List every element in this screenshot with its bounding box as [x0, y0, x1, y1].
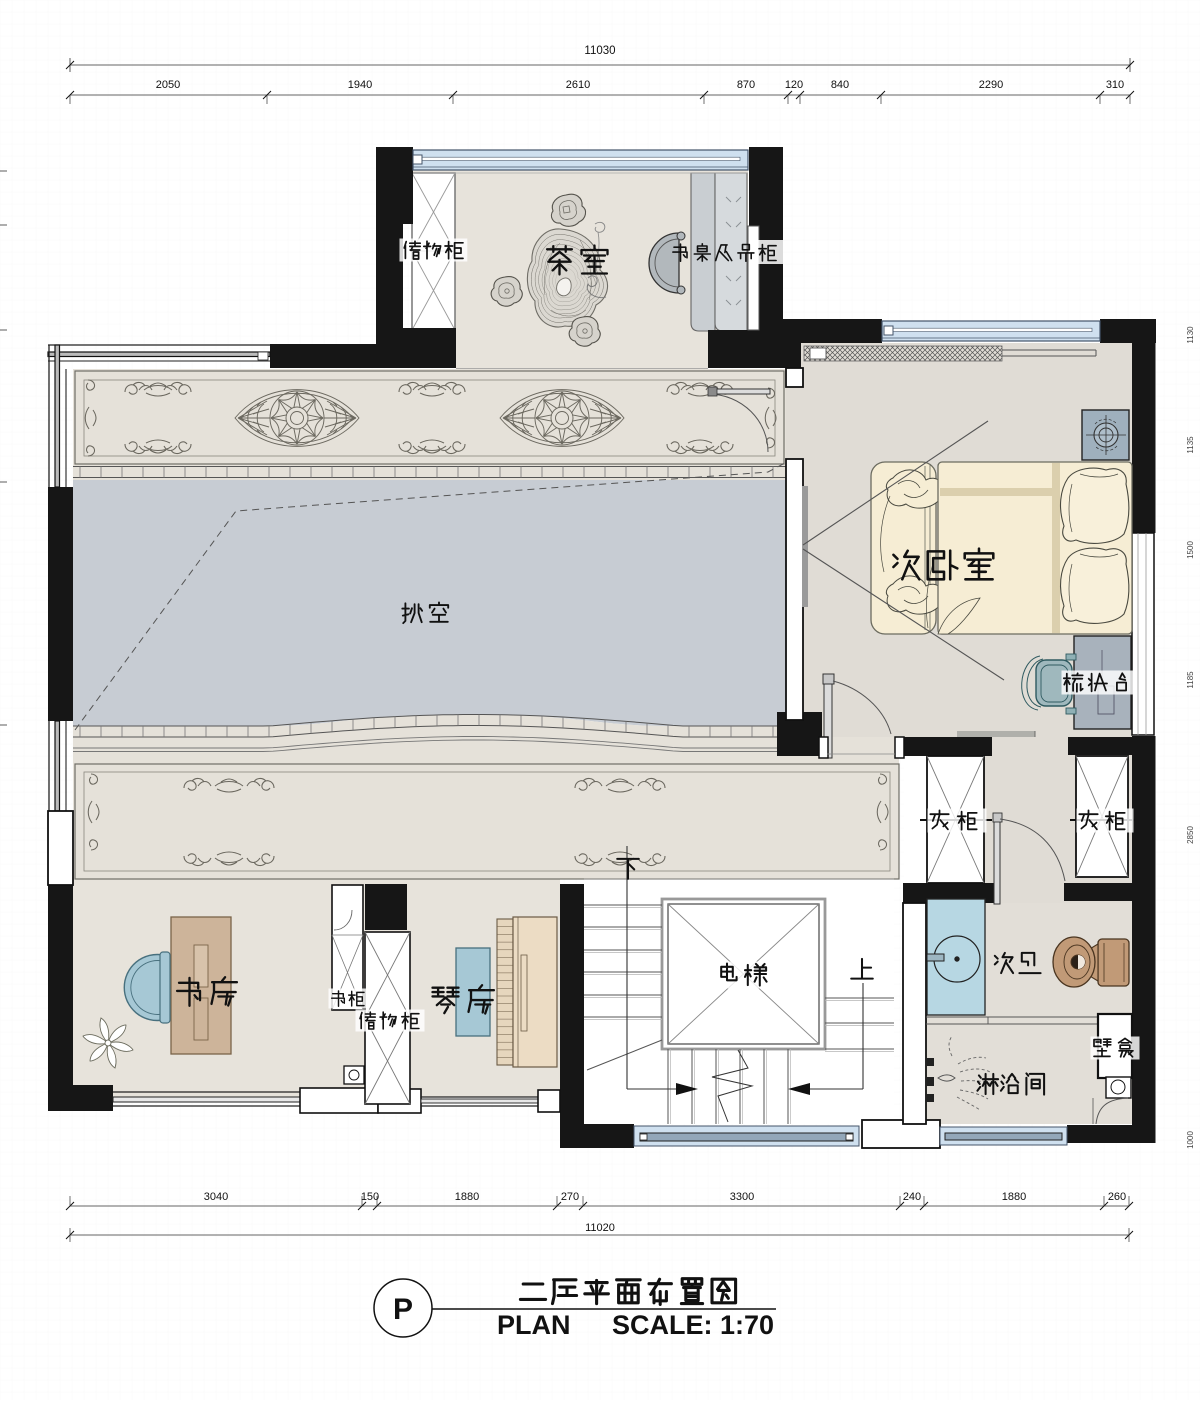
svg-text:1000: 1000 — [1186, 1131, 1195, 1149]
svg-text:SCALE: 1:70: SCALE: 1:70 — [612, 1310, 774, 1340]
svg-text:1130: 1130 — [1186, 326, 1195, 344]
svg-text:310: 310 — [1106, 79, 1124, 91]
svg-text:120: 120 — [785, 79, 803, 91]
svg-text:2850: 2850 — [1186, 826, 1195, 844]
svg-text:150: 150 — [361, 1191, 379, 1203]
svg-text:PLAN: PLAN — [497, 1310, 571, 1340]
svg-text:870: 870 — [737, 79, 755, 91]
svg-text:3040: 3040 — [204, 1191, 228, 1203]
svg-text:270: 270 — [561, 1191, 579, 1203]
svg-text:840: 840 — [831, 79, 849, 91]
svg-text:11020: 11020 — [585, 1222, 615, 1234]
svg-text:1940: 1940 — [348, 79, 372, 91]
svg-text:1880: 1880 — [455, 1191, 479, 1203]
svg-text:2290: 2290 — [979, 79, 1003, 91]
svg-text:2050: 2050 — [156, 79, 180, 91]
svg-text:1500: 1500 — [1186, 541, 1195, 559]
svg-text:11030: 11030 — [584, 45, 615, 57]
svg-text:1185: 1185 — [1186, 671, 1195, 689]
svg-text:260: 260 — [1108, 1191, 1126, 1203]
svg-text:1135: 1135 — [1186, 436, 1195, 454]
svg-text:3300: 3300 — [730, 1191, 754, 1203]
svg-text:P: P — [393, 1293, 413, 1326]
svg-text:1880: 1880 — [1002, 1191, 1026, 1203]
svg-text:240: 240 — [903, 1191, 921, 1203]
svg-text:2610: 2610 — [566, 79, 590, 91]
